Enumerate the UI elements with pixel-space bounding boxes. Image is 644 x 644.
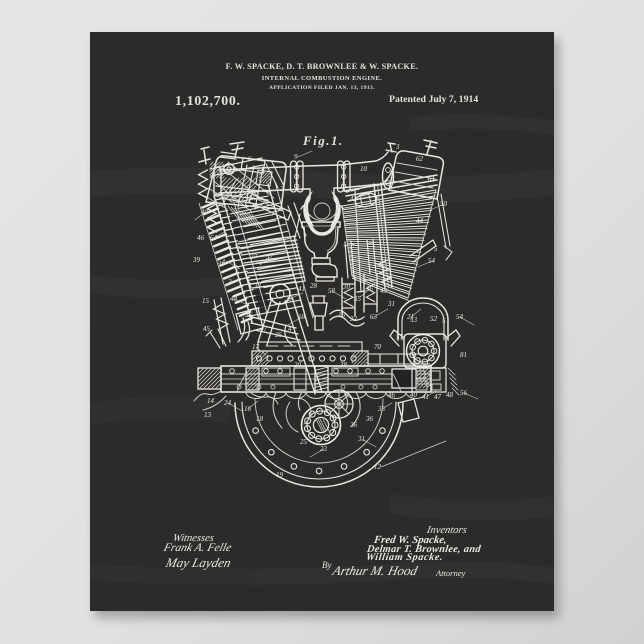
svg-text:41: 41 (422, 393, 429, 401)
svg-text:38: 38 (339, 361, 348, 369)
svg-text:57: 57 (396, 333, 404, 341)
svg-text:61: 61 (428, 175, 435, 183)
svg-text:47: 47 (434, 393, 442, 401)
svg-text:35: 35 (353, 295, 362, 303)
svg-text:52: 52 (430, 315, 438, 323)
svg-text:31: 31 (357, 435, 365, 443)
svg-text:27: 27 (250, 253, 258, 261)
svg-text:4: 4 (288, 325, 292, 333)
svg-text:14: 14 (207, 397, 215, 405)
svg-text:25: 25 (300, 438, 308, 446)
svg-text:39: 39 (192, 256, 201, 264)
svg-text:28: 28 (310, 282, 318, 290)
svg-text:49: 49 (380, 287, 388, 295)
svg-text:30: 30 (342, 283, 351, 291)
svg-text:44: 44 (416, 217, 424, 225)
svg-text:40: 40 (410, 391, 418, 399)
svg-text:36: 36 (365, 415, 374, 423)
svg-text:5: 5 (434, 245, 438, 253)
svg-text:35: 35 (377, 405, 386, 413)
svg-text:19: 19 (276, 471, 284, 479)
svg-text:7: 7 (236, 265, 240, 273)
svg-text:6: 6 (248, 155, 252, 163)
svg-text:48: 48 (446, 391, 454, 399)
svg-text:45: 45 (203, 325, 211, 333)
svg-text:46: 46 (388, 391, 396, 399)
svg-text:10: 10 (360, 165, 368, 173)
svg-text:41: 41 (298, 285, 305, 293)
svg-text:13: 13 (204, 411, 212, 419)
svg-text:18: 18 (256, 415, 264, 423)
svg-text:31: 31 (387, 300, 395, 308)
svg-text:12: 12 (374, 463, 382, 471)
svg-text:20: 20 (294, 361, 302, 369)
svg-text:26: 26 (350, 421, 358, 429)
svg-text:21: 21 (407, 313, 414, 321)
svg-text:26: 26 (245, 311, 253, 319)
svg-text:25: 25 (275, 331, 283, 339)
svg-text:2: 2 (280, 185, 284, 193)
svg-text:46: 46 (197, 234, 205, 242)
svg-text:2: 2 (228, 278, 232, 286)
svg-text:54: 54 (218, 258, 226, 266)
svg-text:62: 62 (416, 155, 424, 163)
svg-text:15: 15 (202, 297, 210, 305)
svg-text:81: 81 (460, 351, 467, 359)
svg-text:16: 16 (338, 311, 346, 319)
svg-text:5: 5 (442, 317, 446, 325)
svg-text:33: 33 (253, 282, 262, 290)
svg-text:9: 9 (294, 153, 298, 161)
svg-text:47: 47 (260, 325, 268, 333)
svg-text:22: 22 (350, 315, 358, 323)
svg-text:70: 70 (374, 343, 382, 351)
svg-text:3: 3 (395, 143, 400, 151)
